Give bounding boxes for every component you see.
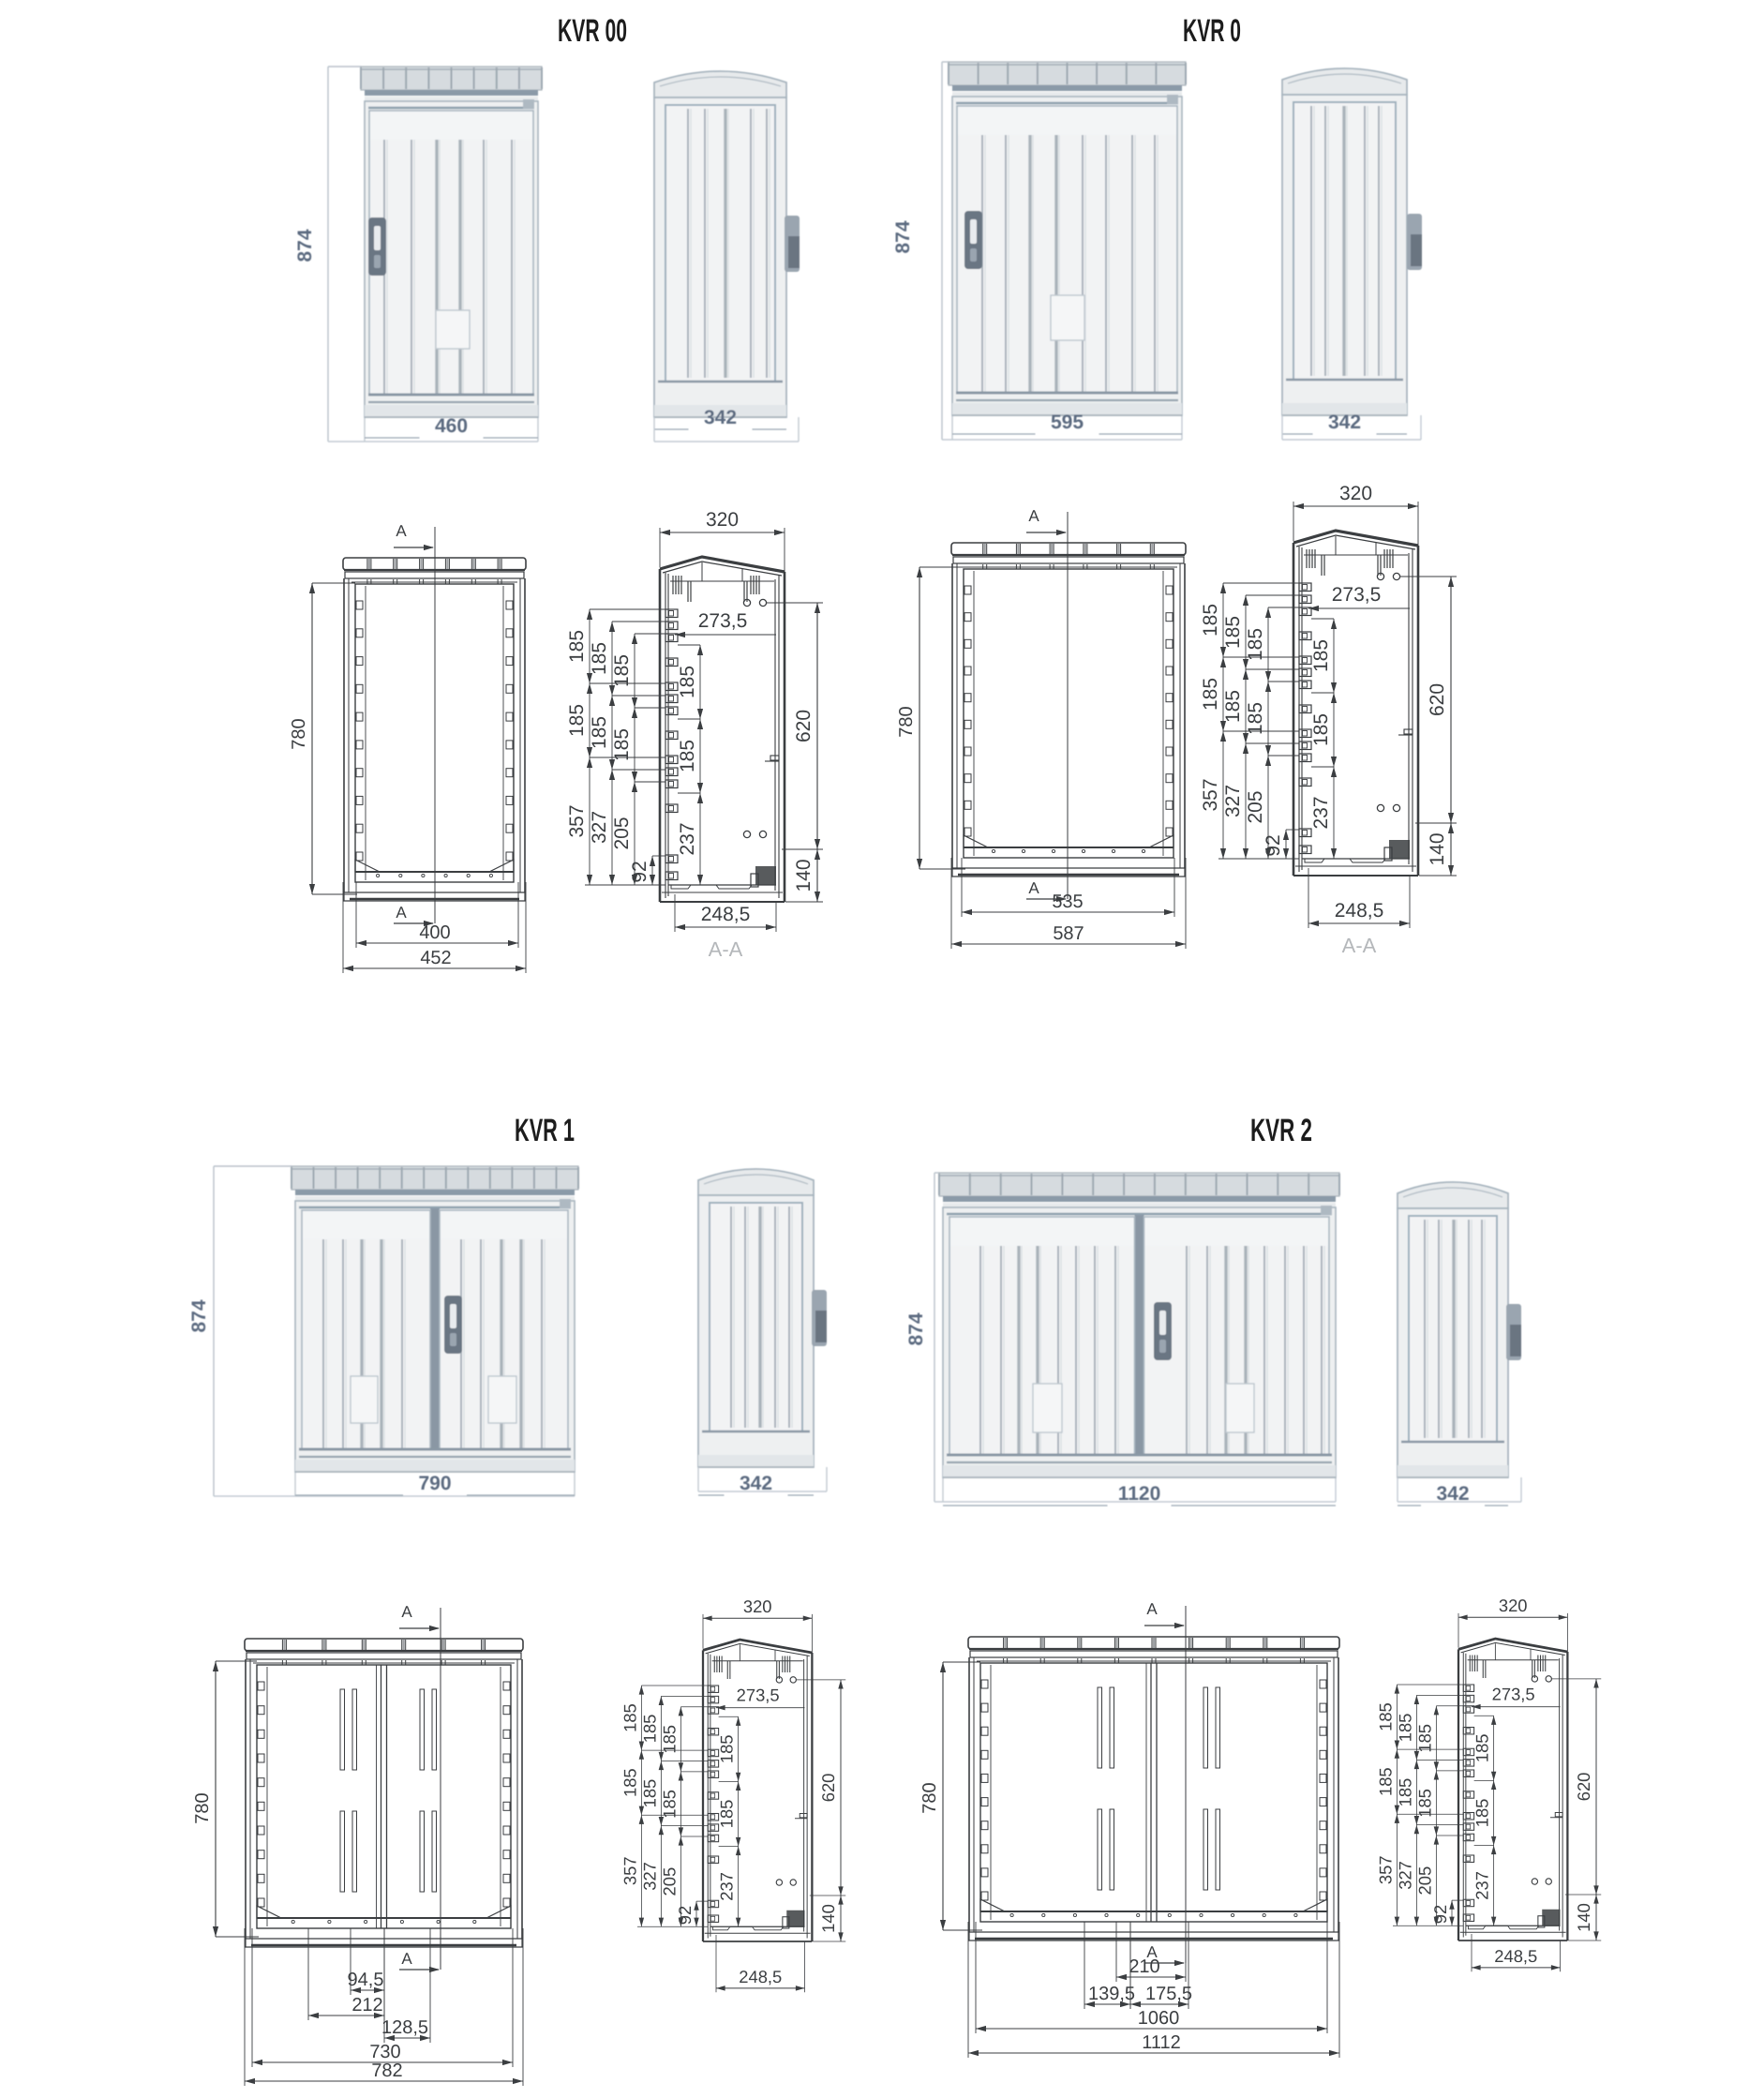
svg-text:185: 185 xyxy=(1222,616,1244,649)
svg-text:94,5: 94,5 xyxy=(348,1970,384,1990)
svg-text:A: A xyxy=(1028,879,1039,897)
svg-text:212: 212 xyxy=(351,1995,382,2016)
svg-text:452: 452 xyxy=(420,948,451,968)
svg-text:1120: 1120 xyxy=(1118,1483,1161,1505)
svg-text:KVR 00: KVR 00 xyxy=(558,13,627,49)
svg-text:92: 92 xyxy=(1431,1905,1450,1924)
svg-text:342: 342 xyxy=(704,407,737,428)
svg-text:92: 92 xyxy=(629,861,650,882)
svg-text:140: 140 xyxy=(1427,832,1448,865)
svg-text:587: 587 xyxy=(1053,923,1084,944)
svg-text:780: 780 xyxy=(289,718,309,749)
svg-text:248,5: 248,5 xyxy=(1335,900,1384,922)
svg-text:874: 874 xyxy=(294,229,316,262)
svg-text:273,5: 273,5 xyxy=(1492,1686,1535,1704)
svg-text:780: 780 xyxy=(896,706,917,737)
svg-text:342: 342 xyxy=(1328,412,1361,433)
svg-text:185: 185 xyxy=(677,740,698,772)
svg-text:185: 185 xyxy=(589,642,610,675)
svg-text:185: 185 xyxy=(1222,690,1244,723)
svg-text:185: 185 xyxy=(1473,1799,1492,1828)
svg-text:874: 874 xyxy=(892,220,914,253)
svg-text:185: 185 xyxy=(1416,1724,1435,1753)
svg-text:185: 185 xyxy=(611,654,633,687)
svg-text:185: 185 xyxy=(1245,702,1266,735)
svg-text:730: 730 xyxy=(369,2042,400,2062)
svg-text:273,5: 273,5 xyxy=(737,1686,780,1705)
svg-text:357: 357 xyxy=(621,1856,640,1885)
svg-text:A: A xyxy=(1146,1600,1158,1618)
svg-text:185: 185 xyxy=(566,630,588,663)
svg-text:620: 620 xyxy=(819,1774,838,1803)
svg-text:273,5: 273,5 xyxy=(1332,584,1382,606)
svg-text:248,5: 248,5 xyxy=(701,904,751,925)
svg-text:185: 185 xyxy=(641,1715,660,1744)
svg-text:357: 357 xyxy=(566,804,588,837)
svg-text:620: 620 xyxy=(1575,1773,1593,1802)
svg-text:185: 185 xyxy=(661,1790,680,1819)
svg-text:237: 237 xyxy=(718,1872,737,1901)
svg-text:780: 780 xyxy=(192,1792,213,1823)
svg-text:327: 327 xyxy=(641,1862,660,1891)
svg-text:273,5: 273,5 xyxy=(698,610,748,632)
svg-text:A: A xyxy=(396,904,407,922)
svg-text:327: 327 xyxy=(1397,1861,1415,1890)
svg-text:185: 185 xyxy=(661,1725,680,1754)
svg-text:790: 790 xyxy=(418,1473,451,1494)
svg-text:185: 185 xyxy=(589,716,610,749)
svg-text:140: 140 xyxy=(819,1904,838,1933)
svg-text:185: 185 xyxy=(611,728,633,761)
svg-text:320: 320 xyxy=(706,509,739,531)
svg-text:185: 185 xyxy=(1245,628,1266,661)
svg-text:620: 620 xyxy=(793,710,815,742)
svg-text:185: 185 xyxy=(1377,1767,1396,1796)
svg-text:139,5: 139,5 xyxy=(1088,1984,1135,2004)
svg-text:327: 327 xyxy=(1222,785,1244,817)
svg-text:782: 782 xyxy=(371,2061,402,2081)
svg-text:780: 780 xyxy=(919,1782,940,1813)
svg-text:460: 460 xyxy=(435,415,468,437)
svg-text:185: 185 xyxy=(1397,1714,1415,1743)
svg-text:205: 205 xyxy=(1416,1866,1435,1896)
svg-text:620: 620 xyxy=(1427,683,1448,716)
svg-text:185: 185 xyxy=(1473,1733,1492,1762)
svg-text:128,5: 128,5 xyxy=(381,2017,428,2038)
svg-text:205: 205 xyxy=(1245,790,1266,823)
svg-text:205: 205 xyxy=(661,1867,680,1896)
svg-text:248,5: 248,5 xyxy=(1494,1947,1537,1966)
svg-text:1060: 1060 xyxy=(1138,2008,1180,2029)
svg-text:185: 185 xyxy=(1416,1789,1435,1818)
svg-text:185: 185 xyxy=(1200,678,1221,711)
svg-text:535: 535 xyxy=(1052,892,1083,912)
svg-text:185: 185 xyxy=(1200,604,1221,637)
svg-text:248,5: 248,5 xyxy=(739,1968,782,1986)
svg-text:175,5: 175,5 xyxy=(1145,1984,1192,2004)
svg-text:320: 320 xyxy=(1499,1596,1528,1615)
svg-text:874: 874 xyxy=(905,1312,927,1345)
svg-text:357: 357 xyxy=(1377,1855,1396,1884)
svg-text:A: A xyxy=(401,1603,412,1621)
svg-text:237: 237 xyxy=(677,822,698,855)
svg-text:1112: 1112 xyxy=(1142,2032,1181,2053)
svg-text:KVR 1: KVR 1 xyxy=(515,1113,575,1148)
svg-text:205: 205 xyxy=(611,817,633,849)
svg-text:KVR 2: KVR 2 xyxy=(1250,1113,1312,1148)
svg-text:185: 185 xyxy=(566,704,588,737)
svg-text:185: 185 xyxy=(1377,1702,1396,1731)
svg-text:185: 185 xyxy=(718,1800,737,1829)
svg-text:874: 874 xyxy=(188,1299,210,1332)
svg-text:A: A xyxy=(401,1950,412,1968)
svg-text:A-A: A-A xyxy=(709,937,743,961)
svg-text:A-A: A-A xyxy=(1342,934,1377,957)
svg-text:92: 92 xyxy=(676,1906,695,1925)
svg-text:A: A xyxy=(1028,507,1039,525)
svg-text:140: 140 xyxy=(793,859,815,892)
svg-text:185: 185 xyxy=(1397,1778,1415,1807)
svg-text:185: 185 xyxy=(621,1768,640,1797)
svg-text:185: 185 xyxy=(621,1703,640,1732)
svg-text:185: 185 xyxy=(641,1779,660,1808)
svg-text:185: 185 xyxy=(1310,713,1332,746)
svg-text:A: A xyxy=(396,522,407,540)
svg-text:92: 92 xyxy=(1263,834,1284,856)
svg-text:210: 210 xyxy=(1129,1956,1159,1977)
svg-text:595: 595 xyxy=(1051,412,1084,433)
svg-text:185: 185 xyxy=(1310,639,1332,672)
svg-text:185: 185 xyxy=(718,1734,737,1763)
svg-text:320: 320 xyxy=(1339,483,1372,504)
svg-text:KVR 0: KVR 0 xyxy=(1183,13,1241,49)
svg-text:327: 327 xyxy=(589,811,610,844)
svg-text:237: 237 xyxy=(1473,1871,1492,1900)
svg-text:237: 237 xyxy=(1310,796,1332,829)
svg-text:400: 400 xyxy=(419,922,450,943)
svg-text:140: 140 xyxy=(1575,1903,1593,1932)
svg-text:320: 320 xyxy=(743,1597,772,1616)
svg-text:357: 357 xyxy=(1200,778,1221,811)
svg-text:185: 185 xyxy=(677,666,698,698)
